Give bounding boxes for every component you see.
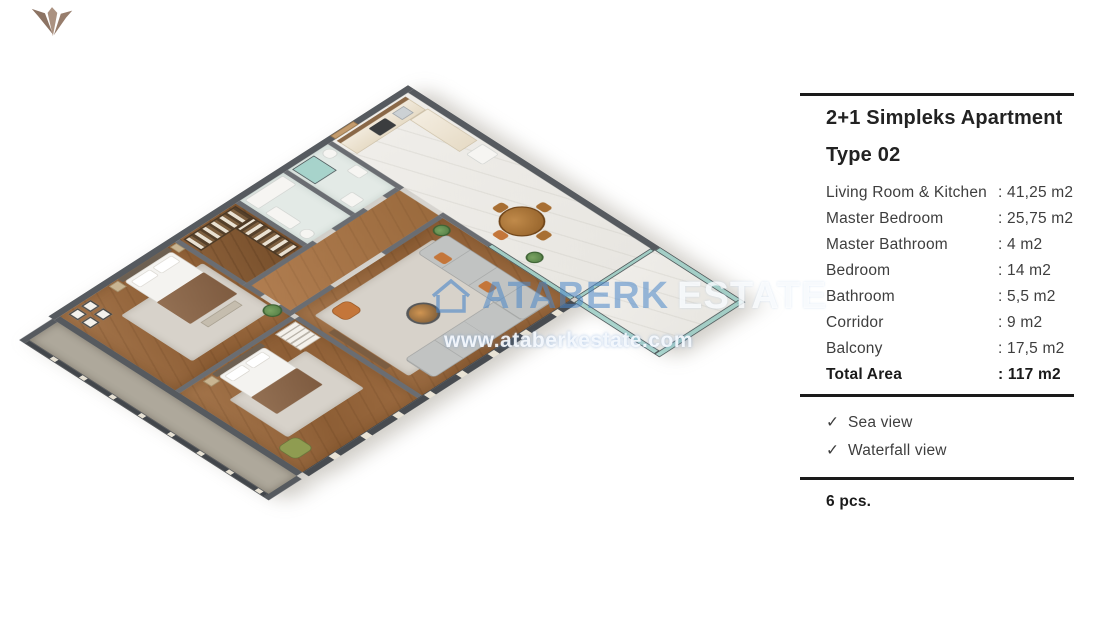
floor-plan-3d: [0, 0, 800, 630]
spec-label: Master Bathroom: [826, 232, 998, 258]
spec-value: : 41,25 m2: [998, 180, 1074, 206]
apartment-type: Type 02: [826, 145, 1074, 166]
feature-sea-view: ✓ Sea view: [826, 409, 1074, 437]
spec-value: : 14 m2: [998, 258, 1074, 284]
apartment-title: 2+1 Simpleks Apartment: [826, 108, 1074, 129]
spec-row-bathroom: Bathroom : 5,5 m2: [826, 284, 1074, 310]
feature-list: ✓ Sea view ✓ Waterfall view: [826, 409, 1074, 465]
check-icon: ✓: [826, 437, 848, 465]
spec-label: Corridor: [826, 310, 998, 336]
spec-label: Bathroom: [826, 284, 998, 310]
check-icon: ✓: [826, 409, 848, 437]
spec-row-master-bathroom: Master Bathroom : 4 m2: [826, 232, 1074, 258]
total-area-label: Total Area: [826, 362, 998, 388]
unit-count: 6 pcs.: [826, 493, 1074, 511]
spec-panel: 2+1 Simpleks Apartment Type 02 Living Ro…: [800, 93, 1074, 511]
spec-row-living-kitchen: Living Room & Kitchen : 41,25 m2: [826, 180, 1074, 206]
spec-label: Bedroom: [826, 258, 998, 284]
feature-label: Sea view: [848, 409, 913, 437]
spec-label: Master Bedroom: [826, 206, 998, 232]
feature-waterfall-view: ✓ Waterfall view: [826, 437, 1074, 465]
spec-row-total-area: Total Area : 117 m2: [826, 362, 1074, 388]
spec-value: : 9 m2: [998, 310, 1074, 336]
total-area-value: : 117 m2: [998, 362, 1074, 388]
feature-label: Waterfall view: [848, 437, 947, 465]
spec-value: : 5,5 m2: [998, 284, 1074, 310]
spec-label: Living Room & Kitchen: [826, 180, 998, 206]
spec-value: : 25,75 m2: [998, 206, 1074, 232]
spec-label: Balcony: [826, 336, 998, 362]
room-area-list: Living Room & Kitchen : 41,25 m2 Master …: [826, 180, 1074, 388]
divider-bottom: [800, 477, 1074, 480]
spec-value: : 17,5 m2: [998, 336, 1074, 362]
spec-row-bedroom: Bedroom : 14 m2: [826, 258, 1074, 284]
spec-row-corridor: Corridor : 9 m2: [826, 310, 1074, 336]
floor-plan-iso-group: [14, 85, 746, 555]
spec-row-master-bedroom: Master Bedroom : 25,75 m2: [826, 206, 1074, 232]
divider-middle: [800, 394, 1074, 397]
spec-row-balcony: Balcony : 17,5 m2: [826, 336, 1074, 362]
brochure-page: ATABERKESTATE www.ataberkestate.com 2+1 …: [0, 0, 1120, 630]
spec-value: : 4 m2: [998, 232, 1074, 258]
divider-top: [800, 93, 1074, 96]
